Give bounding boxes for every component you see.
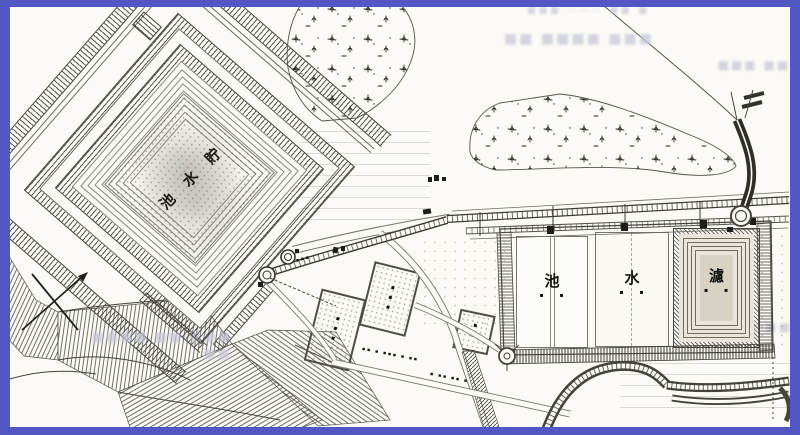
junction-well bbox=[495, 344, 519, 371]
linework-layer bbox=[0, 0, 800, 435]
embankment-arc bbox=[545, 357, 789, 433]
north-arrow bbox=[22, 272, 88, 330]
channels bbox=[266, 192, 789, 274]
scanned-map-page: { "frame": { "color": "#5257c4", "paper"… bbox=[0, 0, 800, 435]
roads bbox=[268, 218, 570, 434]
pond-compound bbox=[497, 218, 775, 364]
inlet-works bbox=[727, 90, 764, 232]
